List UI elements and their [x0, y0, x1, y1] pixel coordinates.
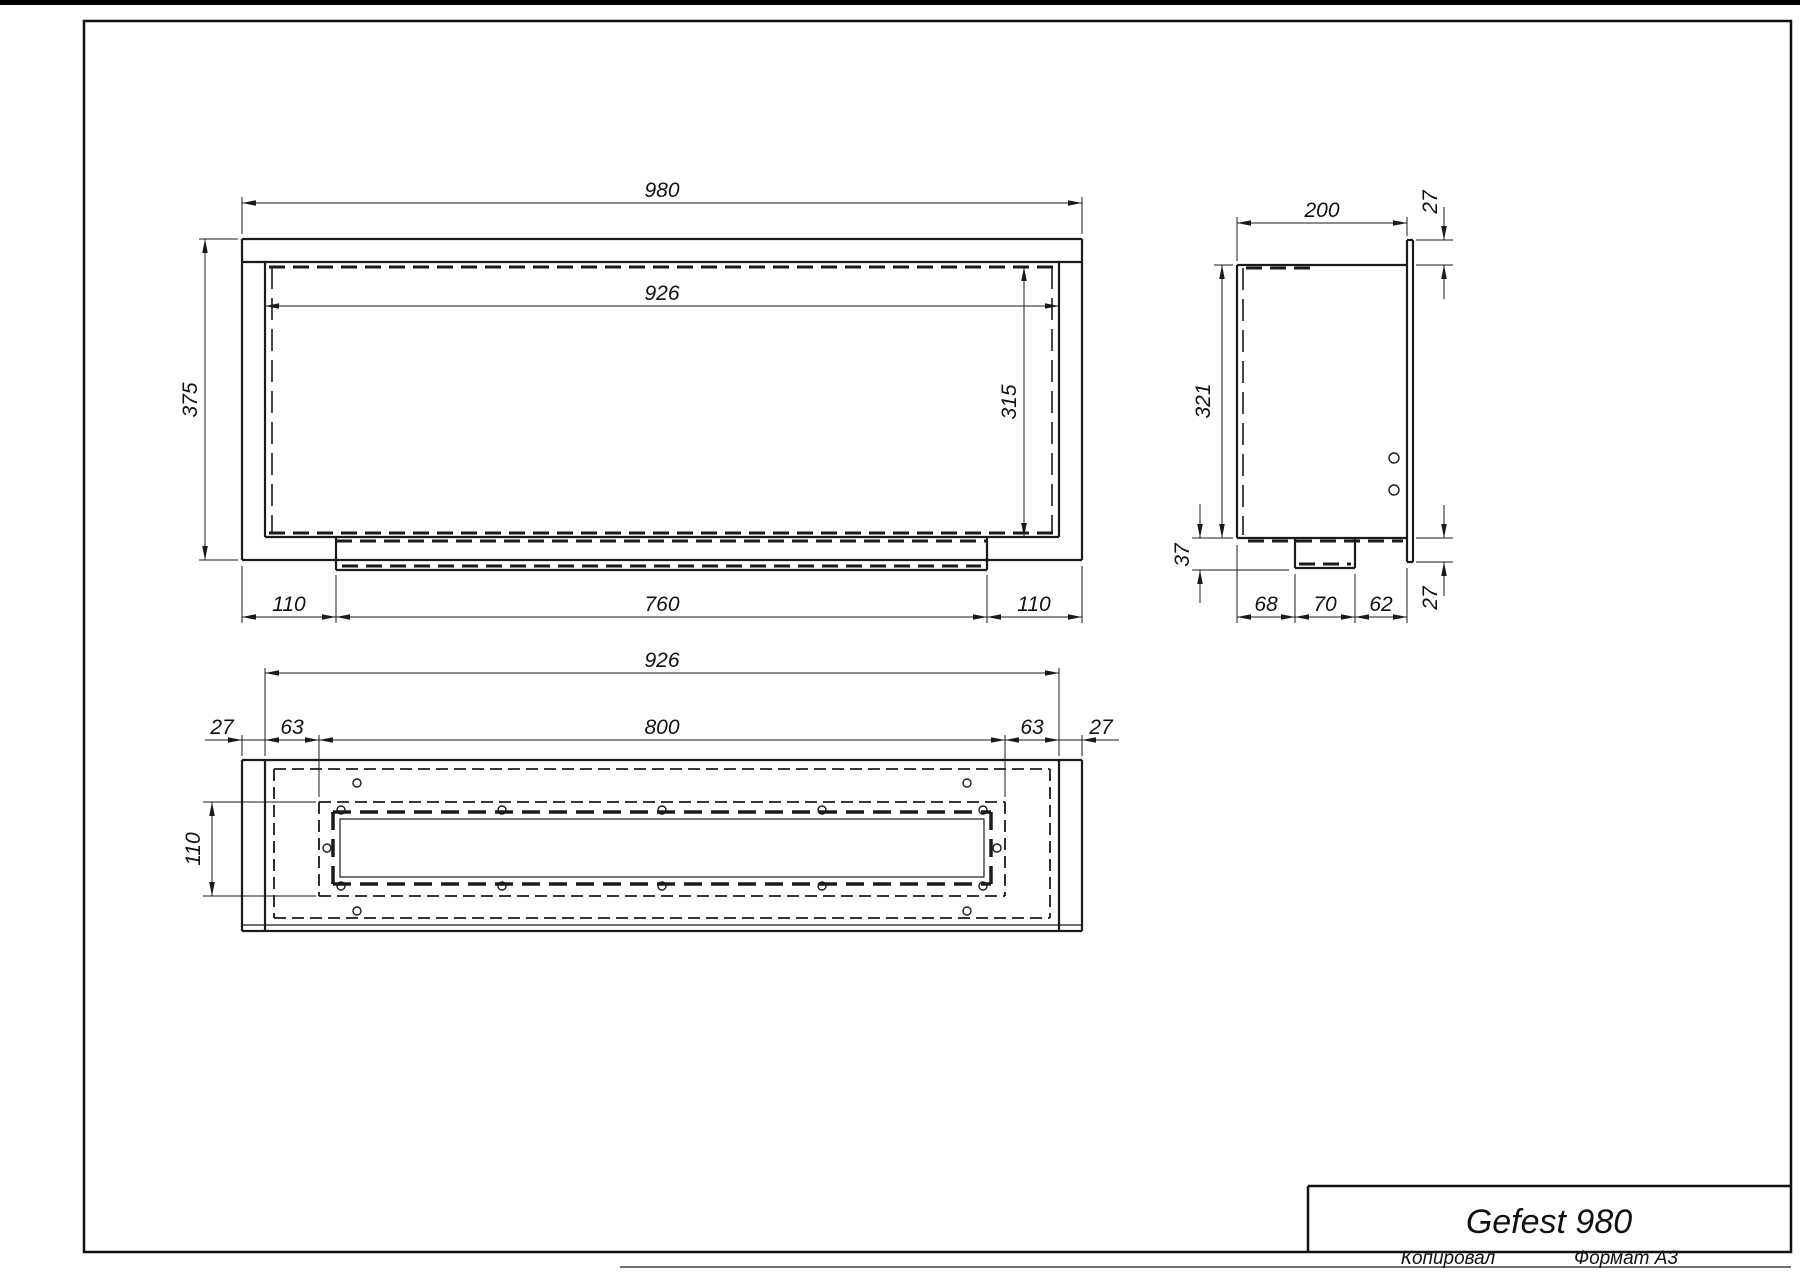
dim-front-bottom-right: 110: [1017, 593, 1051, 616]
screw-hole: [1389, 485, 1399, 495]
dim-front-inner-height: 315: [998, 384, 1021, 419]
bottom-view-outline: [242, 760, 1082, 931]
format-label: Формат А3: [1574, 1248, 1678, 1269]
front-view-burner-tray: [336, 537, 987, 570]
bottom-view-dimensions: 926 27 63 800 63 27 110: [182, 649, 1119, 896]
dim-side-seg-3: 62: [1369, 593, 1393, 616]
technical-drawing: 980 926 375 315 110 760 110: [0, 0, 1800, 1273]
front-view: 980 926 375 315 110 760 110: [179, 179, 1082, 623]
dim-front-tray-width: 760: [644, 593, 679, 616]
side-view-hidden-lines: [1243, 268, 1403, 541]
dim-side-top-flange: 27: [1419, 189, 1442, 215]
dim-front-inner-width: 926: [644, 282, 679, 305]
dim-side-seg-1: 68: [1254, 593, 1278, 616]
side-view-outline: [1237, 240, 1413, 562]
dim-bottom-flange-right: 27: [1088, 716, 1114, 739]
front-view-hidden-lines: [269, 267, 1055, 533]
dim-front-height: 375: [179, 382, 202, 417]
side-view-screw-holes: [1389, 453, 1399, 495]
dim-bottom-width: 926: [644, 649, 679, 672]
dim-side-seg-2: 70: [1313, 593, 1337, 616]
bottom-view-holes: [323, 779, 1001, 915]
dim-bottom-flange-left: 27: [209, 716, 235, 739]
dim-bottom-slot-depth: 110: [182, 832, 205, 866]
title-block: Gefest 980 Копировал Формат А3: [1308, 1186, 1791, 1269]
page-frame: [0, 0, 1800, 1267]
front-view-dimensions: 980 926 375 315 110 760 110: [179, 179, 1082, 623]
drawing-sheet: 980 926 375 315 110 760 110: [0, 0, 1800, 1273]
dim-front-bottom-left: 110: [272, 593, 306, 616]
drawing-title: Gefest 980: [1466, 1203, 1632, 1241]
dim-side-tray-drop: 37: [1171, 542, 1194, 567]
dim-bottom-slot-width: 800: [644, 716, 679, 739]
screw-hole: [1389, 453, 1399, 463]
dim-side-depth: 200: [1303, 199, 1339, 222]
bottom-view: 926 27 63 800 63 27 110: [182, 649, 1119, 931]
dim-side-bottom-flange: 27: [1419, 585, 1442, 611]
side-view: 200 27 321 37: [1171, 189, 1453, 623]
copied-label: Копировал: [1401, 1248, 1496, 1269]
side-view-dimensions: 200 27 321 37: [1171, 189, 1453, 623]
dim-bottom-inset-left: 63: [280, 716, 304, 739]
dim-front-overall-width: 980: [644, 179, 679, 202]
dim-bottom-inset-right: 63: [1020, 716, 1044, 739]
dim-side-height: 321: [1192, 383, 1215, 418]
